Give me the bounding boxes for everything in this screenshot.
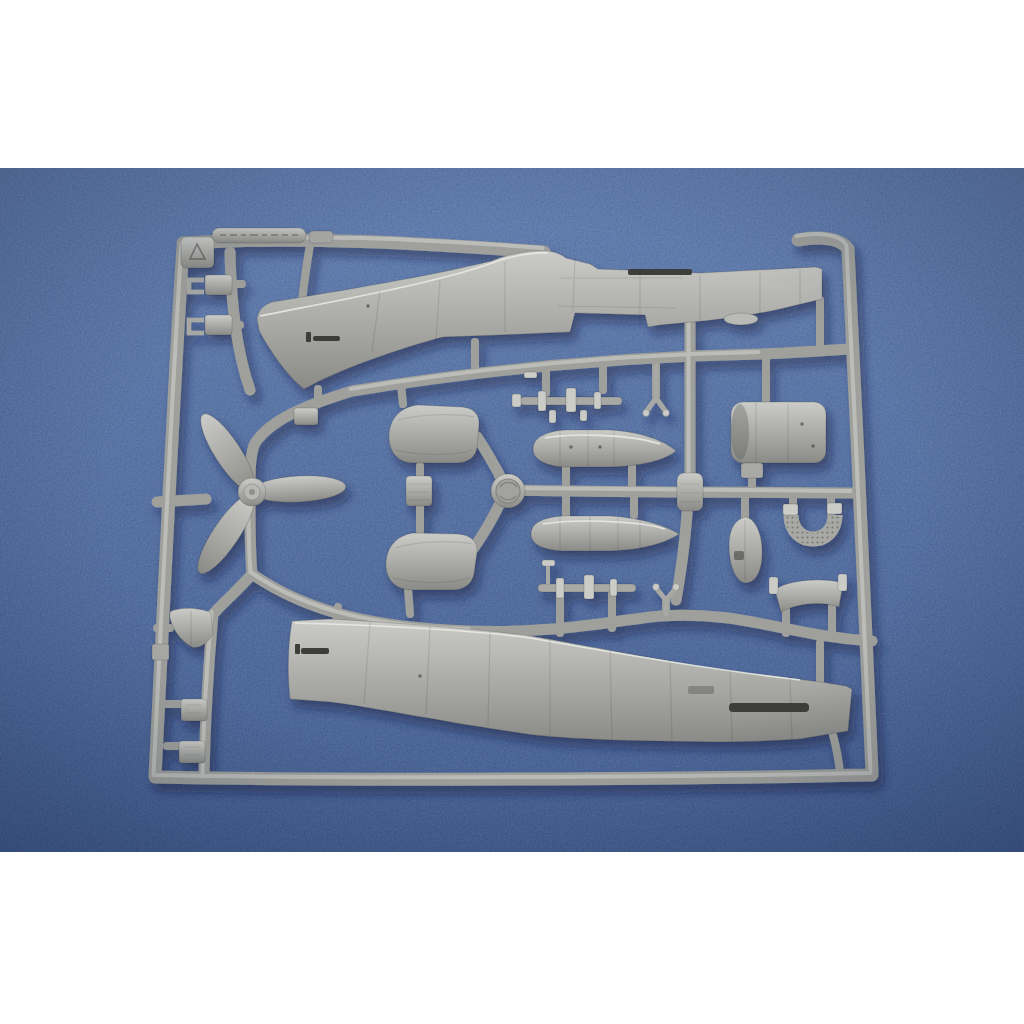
photo-stage xyxy=(0,0,1024,1024)
letterbox-bottom xyxy=(0,852,1024,1024)
sprue-photo xyxy=(0,0,1024,1024)
letterbox-top xyxy=(0,0,1024,168)
photo-vignette xyxy=(0,168,1024,852)
